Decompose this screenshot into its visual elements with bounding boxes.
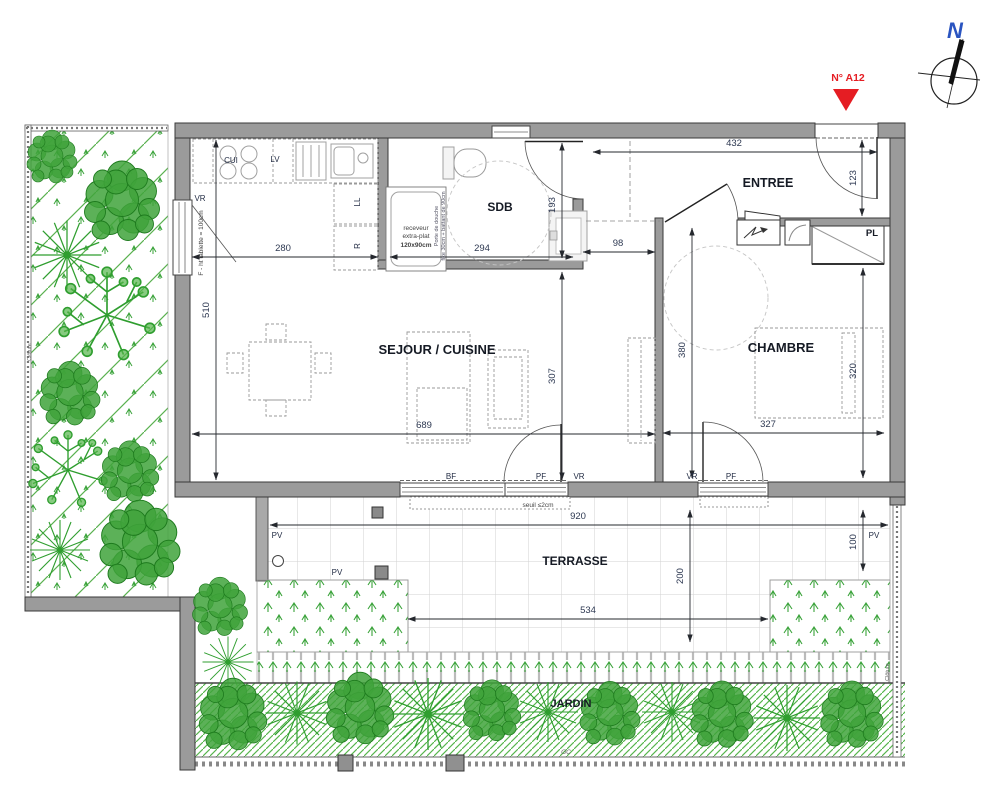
- label-ll: LL: [353, 197, 362, 206]
- tree-radial-icon: [30, 520, 90, 580]
- dim-200: 200: [675, 568, 686, 584]
- label-vr-window: VR: [194, 194, 205, 203]
- planted-bed-right: [770, 580, 890, 652]
- kitchen-counter: [193, 139, 378, 183]
- shower-note-3: 120x90cm: [400, 242, 431, 249]
- label-seuil: seuil ≤2cm: [522, 502, 553, 509]
- dim-123: 123: [848, 170, 859, 186]
- room-label-terrasse: TERRASSE: [542, 554, 607, 568]
- label-pf-chambre: PF: [726, 472, 736, 481]
- door-pf-sejour: [505, 483, 568, 496]
- dim-320: 320: [848, 363, 859, 379]
- terrace-post: [372, 507, 383, 518]
- shower-door-note-2: fixe 30cm + battant de 90cm: [441, 191, 447, 261]
- label-r: R: [353, 243, 362, 249]
- label-cui: CUI: [224, 156, 238, 165]
- door-pf-chambre: [698, 483, 768, 496]
- dim-280: 280: [275, 243, 291, 254]
- room-label-sejour: SEJOUR / CUISINE: [378, 342, 495, 357]
- chambre-door-leaf: [665, 184, 727, 222]
- label-vr-chambre: VR: [686, 472, 697, 481]
- tree-leafy-icon: [193, 577, 248, 635]
- fence-post: [446, 755, 464, 771]
- label-cloture-left: Clôture: [27, 343, 33, 361]
- dim-100: 100: [848, 534, 859, 550]
- label-bf: BF: [446, 472, 456, 481]
- tree-radial-icon: [266, 682, 329, 745]
- wardrobe: [628, 338, 655, 443]
- terrace-left-wall: [256, 497, 268, 581]
- dim-920: 920: [570, 511, 586, 522]
- tree-radial-icon: [518, 682, 578, 742]
- window-height-note: F - ht tablette = 100cm: [198, 210, 205, 275]
- label-vr-sejour: VR: [573, 472, 584, 481]
- label-gc: GC: [561, 749, 571, 756]
- dim-432: 432: [726, 138, 742, 149]
- toilet-tank: [443, 147, 454, 179]
- entree-shelf: [745, 211, 780, 220]
- dim-510: 510: [201, 302, 212, 318]
- shower-door-note-1: Porte de douche: [434, 206, 440, 246]
- chair: [227, 353, 243, 373]
- dim-380: 380: [677, 342, 688, 358]
- room-label-sdb: SDB: [487, 200, 513, 214]
- washbasin-tap: [550, 231, 557, 240]
- terrace-post: [375, 566, 388, 579]
- turning-circle-chambre: [664, 246, 768, 350]
- toilet-bowl: [454, 149, 486, 177]
- unit-label: N° A12: [831, 72, 865, 84]
- seuil-strip-chambre: [700, 497, 768, 507]
- intercom-box: [785, 220, 810, 245]
- fence-post: [338, 755, 353, 771]
- tree-radial-icon: [754, 685, 820, 751]
- north-label: N: [947, 18, 964, 43]
- entry-door-arc: [816, 137, 878, 199]
- dim-294: 294: [474, 243, 490, 254]
- floorplan-drawing: SEJOUR / CUISINE CHAMBRE SDB ENTREE PL T…: [0, 0, 986, 800]
- dim-534: 534: [580, 605, 596, 616]
- compass: N: [918, 18, 980, 108]
- dining-table: [249, 342, 311, 400]
- label-pv-mid: PV: [332, 568, 343, 577]
- floorplan-page: SEJOUR / CUISINE CHAMBRE SDB ENTREE PL T…: [0, 0, 986, 800]
- dim-327: 327: [760, 419, 776, 430]
- label-pf-sejour: PF: [536, 472, 546, 481]
- unit-pointer-icon: [833, 89, 859, 111]
- window-left-vr: [173, 200, 192, 275]
- room-label-jardin: JARDIN: [551, 698, 592, 710]
- room-label-entree: ENTREE: [743, 176, 794, 190]
- terrace-drain: [273, 556, 284, 567]
- dim-689: 689: [416, 420, 432, 431]
- sdb-door-arc: [525, 141, 583, 199]
- unit-marker: N° A12: [831, 72, 865, 111]
- dim-193: 193: [547, 197, 558, 213]
- chair: [315, 353, 331, 373]
- chambre-door-arc: [727, 184, 738, 222]
- label-pv-right: PV: [869, 531, 880, 540]
- label-pv-left: PV: [272, 531, 283, 540]
- room-label-chambre: CHAMBRE: [748, 340, 815, 355]
- dim-307: 307: [547, 368, 558, 384]
- chambre-partition: [655, 218, 663, 482]
- chair: [266, 400, 286, 416]
- chair: [266, 324, 286, 340]
- planted-bed-left: [257, 580, 408, 652]
- dim-98: 98: [613, 238, 624, 249]
- room-label-pl: PL: [866, 228, 878, 239]
- shower-note-2: extra-plat: [402, 233, 429, 240]
- site-wall-vertical: [180, 597, 195, 770]
- window-bf: [400, 483, 505, 496]
- label-cloture-right: Clôture: [885, 663, 891, 681]
- label-lv: LV: [270, 155, 280, 164]
- shower-note-1: receveur: [403, 225, 429, 232]
- site-wall-horizontal: [25, 597, 195, 611]
